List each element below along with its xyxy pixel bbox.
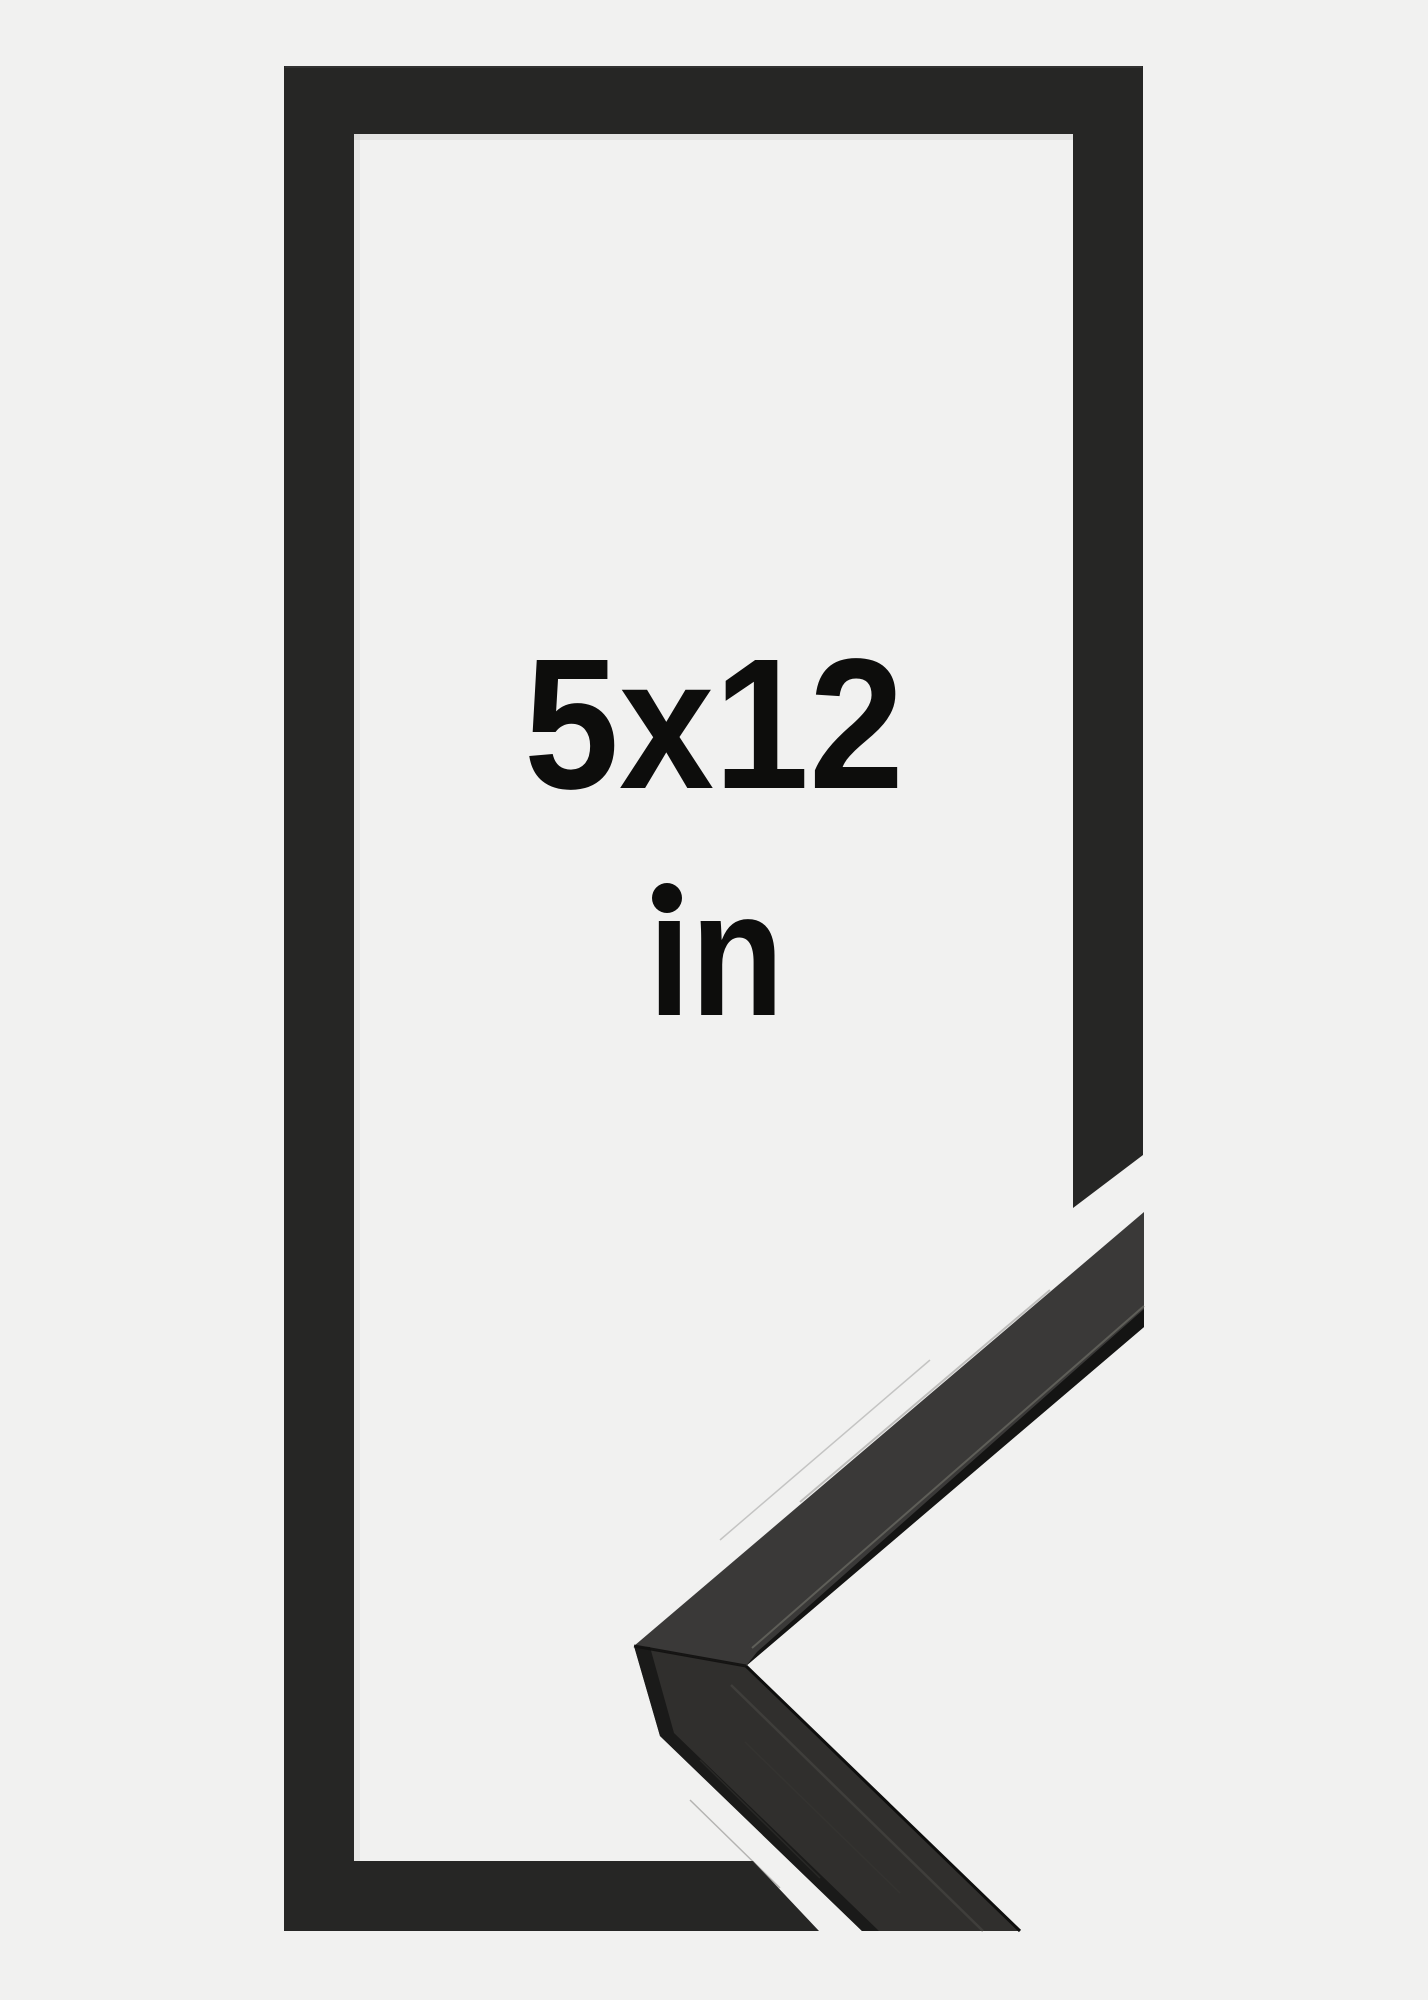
window-shadow-top [354, 134, 1073, 140]
i-tittle-dot [652, 883, 682, 913]
product-photo-page: 5x12 ın [0, 0, 1428, 2000]
window-shadow-left [354, 134, 360, 1861]
size-label: 5x12 [524, 621, 904, 828]
frame-product-image: 5x12 ın [0, 0, 1428, 2000]
